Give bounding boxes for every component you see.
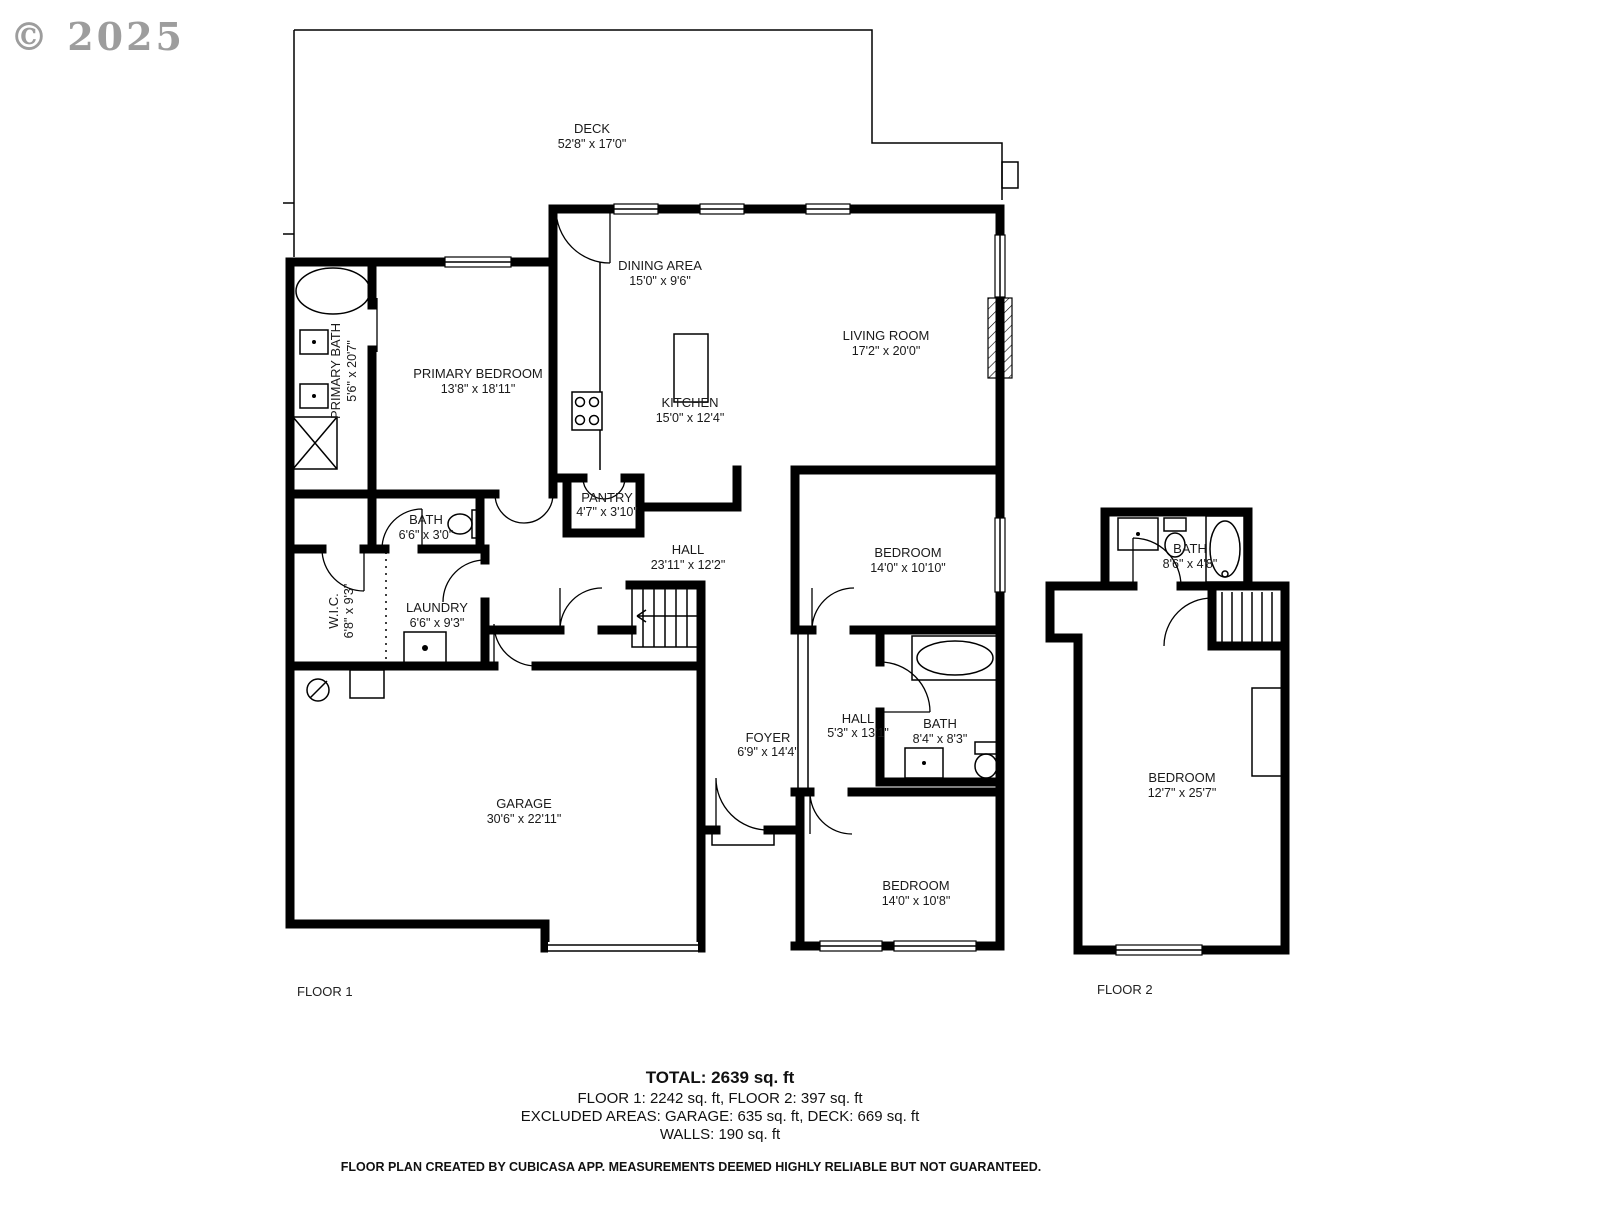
room-label-deck: DECK <box>574 121 610 136</box>
room-label-floor2-bedroom: BEDROOM <box>1148 770 1215 785</box>
room-dims-deck: 52'8" x 17'0" <box>558 137 627 151</box>
garage-door <box>548 942 698 954</box>
floor1-caption: FLOOR 1 <box>297 984 353 999</box>
summary-floors: FLOOR 1: 2242 sq. ft, FLOOR 2: 397 sq. f… <box>320 1090 1120 1108</box>
disclaimer-text: FLOOR PLAN CREATED BY CUBICASA APP. MEAS… <box>291 1160 1091 1174</box>
floor2-caption: FLOOR 2 <box>1097 982 1153 997</box>
room-dims-dining: 15'0" x 9'6" <box>629 274 691 288</box>
floorplan-svg: DECK 52'8" x 17'0" DINING AREA 15'0" x 9… <box>0 0 1600 1200</box>
summary-walls: WALLS: 190 sq. ft <box>320 1126 1120 1144</box>
room-label-laundry: LAUNDRY <box>406 600 468 615</box>
room-dims-primary-bath: 5'6" x 20'7" <box>345 340 359 402</box>
room-label-floor2-bath: BATH <box>1173 541 1207 556</box>
room-dims-primary-bedroom: 13'8" x 18'11" <box>441 382 516 396</box>
window <box>445 204 1005 951</box>
room-label-primary-bedroom: PRIMARY BEDROOM <box>413 366 543 381</box>
room-dims-foyer: 6'9" x 14'4" <box>737 745 799 759</box>
toilet-icon <box>975 742 997 778</box>
bathtub-icon <box>296 268 370 314</box>
stairs-icon <box>632 585 704 647</box>
bathtub-icon <box>1206 516 1244 582</box>
room-label-hall2: HALL <box>842 711 875 726</box>
fireplace-icon <box>988 298 1012 378</box>
room-dims-floor2-bath: 8'6" x 4'8" <box>1163 557 1218 571</box>
room-dims-bedroom2: 14'0" x 10'8" <box>882 894 951 908</box>
room-dims-wic: 6'8" x 9'3" <box>342 584 356 639</box>
closet-icon <box>293 417 337 469</box>
area-summary: TOTAL: 2639 sq. ft FLOOR 1: 2242 sq. ft,… <box>320 1068 1120 1144</box>
door-arc <box>1164 598 1212 646</box>
water-heater-icon <box>350 670 384 698</box>
room-label-wic: W.I.C. <box>326 593 341 628</box>
room-dims-floor2-bedroom: 12'7" x 25'7" <box>1148 786 1217 800</box>
room-label-bath2: BATH <box>923 716 957 731</box>
room-dims-pantry: 4'7" x 3'10" <box>576 505 638 519</box>
summary-excluded: EXCLUDED AREAS: GARAGE: 635 sq. ft, DECK… <box>320 1108 1120 1126</box>
room-label-dining: DINING AREA <box>618 258 702 273</box>
room-dims-hall: 23'11" x 12'2" <box>651 558 726 572</box>
room-label-hall: HALL <box>672 542 705 557</box>
kitchen-island <box>674 334 708 402</box>
room-dims-bedroom1: 14'0" x 10'10" <box>870 561 946 575</box>
floor1-walls <box>290 209 1000 948</box>
room-dims-bath2: 8'4" x 8'3" <box>913 732 968 746</box>
room-dims-living: 17'2" x 20'0" <box>852 344 921 358</box>
closet-icon <box>1252 688 1282 776</box>
stairs-icon <box>1222 592 1282 644</box>
room-dims-bath: 6'6" x 3'0" <box>399 528 454 542</box>
room-label-garage: GARAGE <box>496 796 552 811</box>
garage-fixtures <box>307 670 384 701</box>
deck-stairs <box>1002 162 1018 188</box>
kitchen-fixtures <box>572 262 708 470</box>
window <box>1116 945 1202 955</box>
deck-outline <box>283 30 1018 257</box>
room-dims-hall2: 5'3" x 13'1" <box>827 726 889 740</box>
bathtub-icon <box>912 636 998 680</box>
room-label-kitchen: KITCHEN <box>661 395 718 410</box>
summary-total: TOTAL: 2639 sq. ft <box>320 1068 1120 1088</box>
room-label-bedroom1: BEDROOM <box>874 545 941 560</box>
room-dims-laundry: 6'6" x 9'3" <box>410 616 465 630</box>
room-dims-kitchen: 15'0" x 12'4" <box>656 411 725 425</box>
floor2-walls <box>1050 512 1285 950</box>
room-label-pantry: PANTRY <box>581 490 633 505</box>
room-label-bedroom2: BEDROOM <box>882 878 949 893</box>
room-label-bath: BATH <box>409 512 443 527</box>
room-label-living: LIVING ROOM <box>843 328 930 343</box>
room-dims-garage: 30'6" x 22'11" <box>487 812 562 826</box>
bath2-fixtures <box>905 636 998 778</box>
stove-icon <box>572 392 602 430</box>
room-label-primary-bath: PRIMARY BATH <box>328 323 343 419</box>
copyright-watermark: © 2025 <box>10 14 185 59</box>
room-label-foyer: FOYER <box>746 730 791 745</box>
